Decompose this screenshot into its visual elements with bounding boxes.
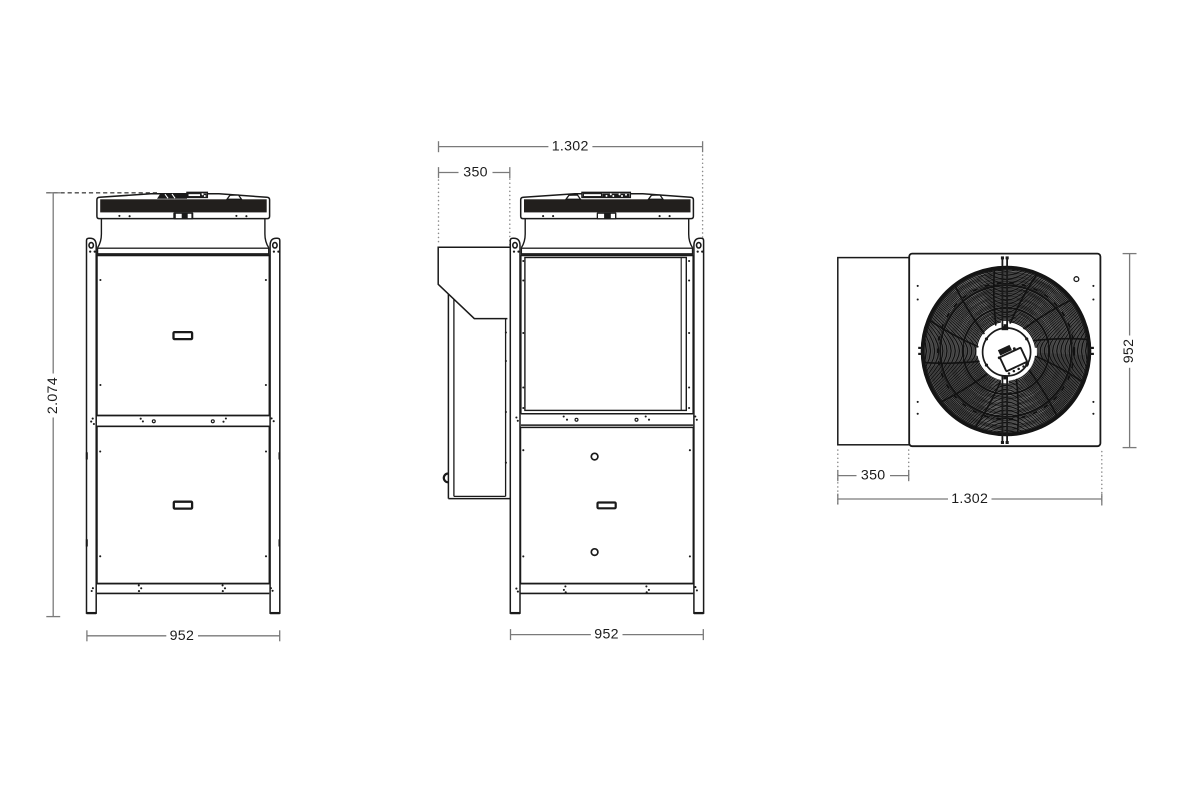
svg-text:2.074: 2.074 — [45, 377, 61, 414]
svg-text:350: 350 — [861, 468, 886, 484]
svg-text:1.302: 1.302 — [951, 491, 988, 507]
svg-text:952: 952 — [1121, 339, 1137, 364]
svg-text:1.302: 1.302 — [552, 139, 589, 155]
svg-text:350: 350 — [463, 165, 488, 181]
svg-text:952: 952 — [594, 627, 619, 643]
svg-text:952: 952 — [170, 628, 195, 644]
